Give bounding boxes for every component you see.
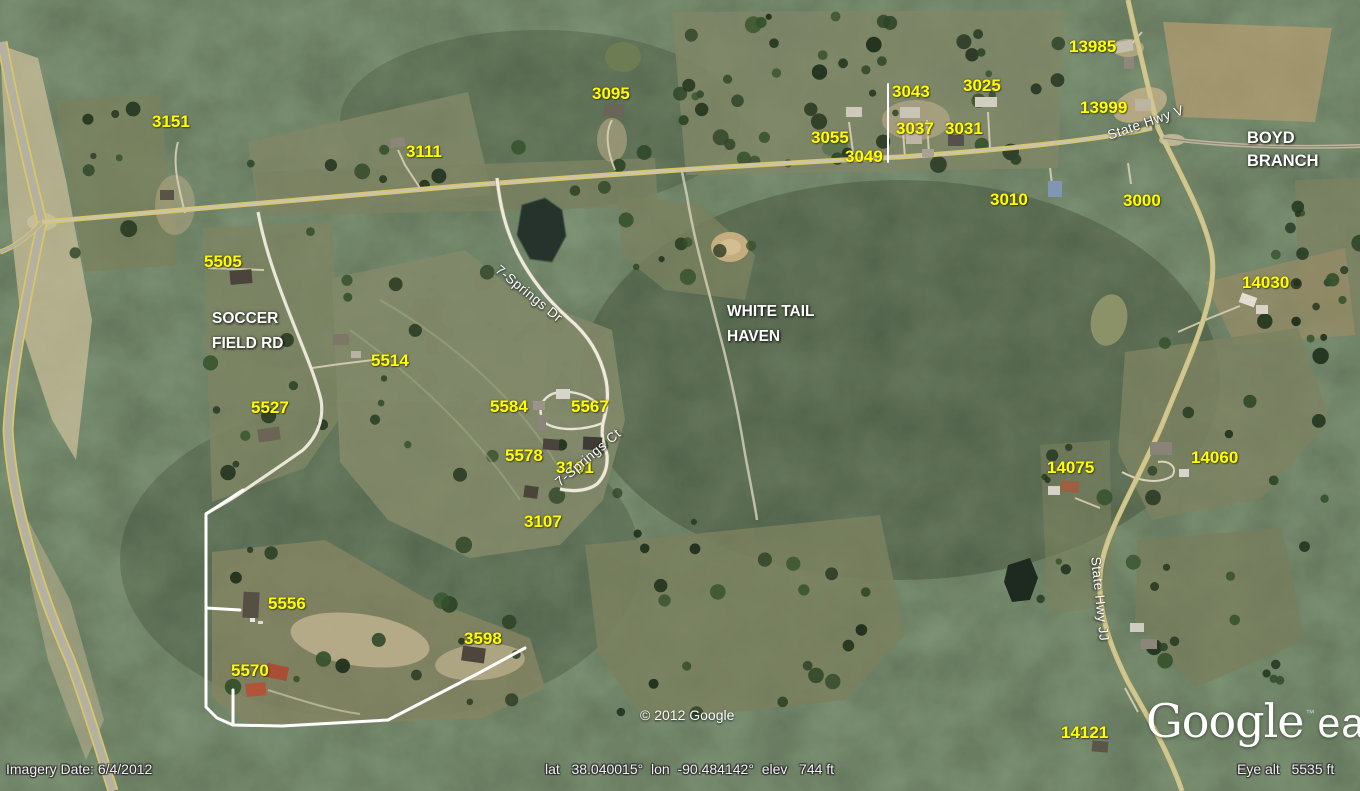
house — [229, 269, 252, 285]
house — [1048, 486, 1060, 495]
house — [1130, 623, 1144, 632]
house — [556, 389, 570, 399]
house — [258, 621, 263, 624]
house — [1179, 469, 1189, 477]
house — [1092, 740, 1109, 752]
house — [1150, 442, 1172, 455]
house — [537, 415, 546, 431]
house — [1061, 480, 1080, 493]
house — [245, 682, 266, 697]
pond — [605, 42, 641, 72]
coordinates-readout: lat 38.040015° lon -90.484142° elev 744 … — [545, 761, 834, 777]
house — [523, 485, 539, 499]
house — [1256, 305, 1268, 314]
house — [242, 592, 259, 619]
house — [900, 107, 920, 118]
house — [1141, 639, 1157, 649]
imagery-date: Imagery Date: 6/4/2012 — [6, 761, 152, 777]
house — [1135, 99, 1151, 111]
house — [250, 618, 255, 622]
house — [1124, 57, 1134, 69]
map-viewport[interactable]: 3151 3111 3095 5505 5514 5527 5584 5567 … — [0, 0, 1360, 791]
copyright-watermark: © 2012 Google — [640, 707, 734, 723]
house — [975, 97, 997, 107]
house — [461, 645, 486, 663]
house — [922, 149, 934, 157]
house — [906, 134, 922, 144]
house — [333, 334, 349, 345]
house — [160, 190, 174, 200]
house — [533, 401, 545, 410]
satellite-imagery — [0, 0, 1360, 791]
house — [846, 107, 862, 117]
house — [948, 135, 964, 146]
eye-altitude: Eye alt 5535 ft — [1237, 761, 1334, 777]
house — [351, 351, 361, 358]
house — [604, 103, 625, 117]
house — [583, 437, 603, 451]
house — [543, 438, 560, 450]
house — [1048, 181, 1062, 197]
